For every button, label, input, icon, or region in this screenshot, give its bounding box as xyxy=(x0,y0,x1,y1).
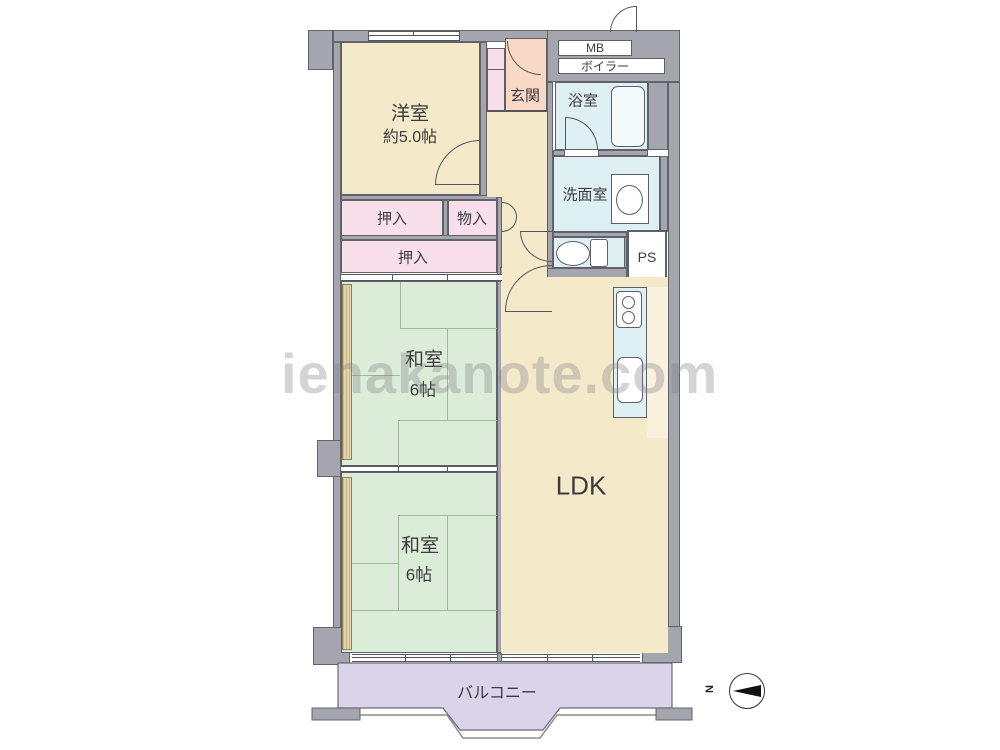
wall-segment xyxy=(668,82,680,660)
label-ldk: LDK xyxy=(556,471,607,502)
label-storage: 物入 xyxy=(457,208,487,229)
toilet-bowl xyxy=(556,241,590,266)
shoe-cabinet-shelf-line xyxy=(488,69,504,70)
stove-burner xyxy=(622,296,635,309)
balcony-wall-stub xyxy=(312,708,360,720)
label-pipe-shaft: PS xyxy=(638,249,657,265)
door-leaf xyxy=(505,311,552,312)
label-bathroom: 浴室 xyxy=(568,90,598,111)
label-closet-upper: 押入 xyxy=(377,208,407,229)
window-tick xyxy=(447,275,448,280)
label-western-room: 洋室 xyxy=(391,99,429,126)
floorplan: 洋室 約5.0帖 玄関 MB ボイラー 浴室 洗面室 PS 押入 物入 押入 和… xyxy=(0,0,1000,750)
label-western-room-size: 約5.0帖 xyxy=(383,123,437,147)
shutter-box-strip xyxy=(342,284,352,460)
label-balcony: バルコニー xyxy=(457,679,537,703)
label-japanese-room-1: 和室 xyxy=(405,345,443,372)
kitchen-counter-strip xyxy=(647,287,668,438)
hallway-upper xyxy=(487,112,547,197)
tatami-line xyxy=(447,515,448,610)
wall-segment xyxy=(317,440,341,477)
shutter-box-strip xyxy=(342,477,352,650)
window xyxy=(368,31,460,41)
washbasin xyxy=(616,185,643,215)
tatami-line xyxy=(447,328,448,420)
compass-needle-icon xyxy=(733,685,761,697)
window-tick xyxy=(413,31,414,36)
wall-segment xyxy=(648,82,668,150)
stove-burner xyxy=(622,311,635,324)
wall-segment xyxy=(660,156,668,232)
tatami-line xyxy=(398,420,497,421)
label-entrance: 玄関 xyxy=(510,85,540,106)
toilet-tank xyxy=(590,239,608,267)
wall-segment xyxy=(333,42,341,660)
kitchen-sink xyxy=(617,357,643,403)
label-japanese-room-1-size: 6帖 xyxy=(410,376,436,401)
door-swing-exterior xyxy=(610,6,636,32)
window-mullion xyxy=(369,35,459,36)
label-japanese-room-2: 和室 xyxy=(401,531,439,558)
tatami-line xyxy=(352,610,497,611)
room-japanese-1 xyxy=(341,281,497,466)
fusuma-partition xyxy=(341,466,497,472)
tatami-line xyxy=(398,515,399,610)
tatami-line xyxy=(400,282,401,328)
label-closet-lower: 押入 xyxy=(398,247,428,268)
tatami-line xyxy=(352,563,398,564)
compass-north-label: N xyxy=(704,685,716,693)
wall-segment xyxy=(308,30,333,70)
label-japanese-room-2-size: 6帖 xyxy=(406,561,432,586)
bathtub xyxy=(611,86,645,147)
shoe-cabinet xyxy=(487,48,505,112)
door-leaf xyxy=(636,6,637,32)
tatami-line xyxy=(352,375,400,376)
window-tick xyxy=(398,467,399,471)
label-boiler: ボイラー xyxy=(581,58,629,75)
tatami-line xyxy=(400,328,497,329)
window-tick xyxy=(392,275,393,280)
label-washroom: 洗面室 xyxy=(562,184,607,205)
balcony-wall-stub xyxy=(656,708,692,720)
label-meter-box: MB xyxy=(586,41,604,55)
wall-segment xyxy=(480,42,487,197)
sliding-door-closet xyxy=(341,274,502,281)
window-tick xyxy=(447,467,448,471)
tatami-line xyxy=(398,420,399,466)
